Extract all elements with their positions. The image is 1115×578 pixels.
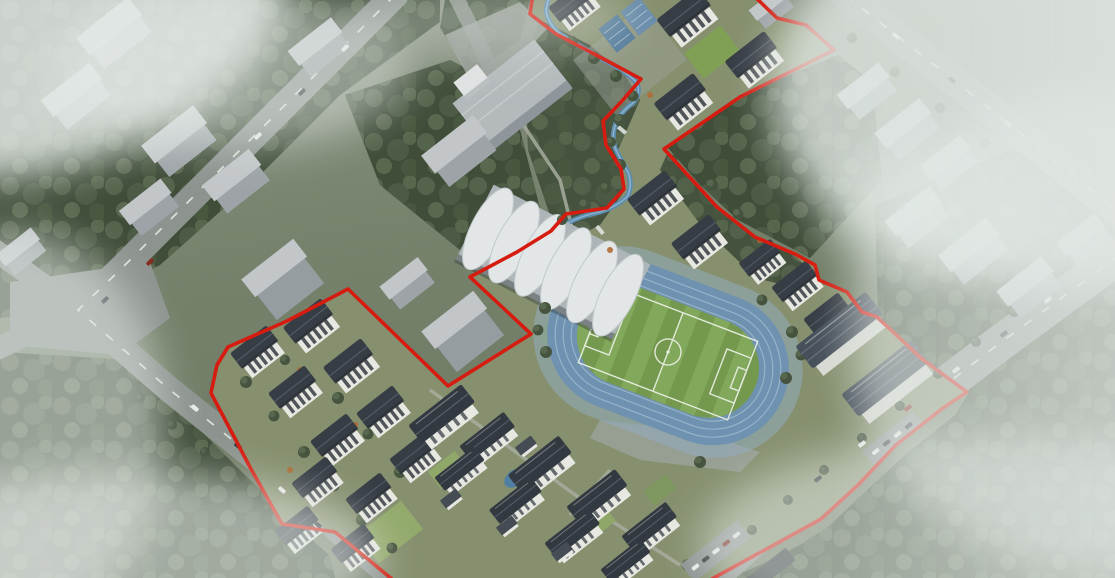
tree xyxy=(614,114,626,126)
tree xyxy=(387,543,398,554)
tree xyxy=(167,420,177,430)
aerial-masterplan-rendering xyxy=(0,0,1115,578)
tree xyxy=(601,183,612,194)
tree xyxy=(733,209,744,220)
tree xyxy=(533,325,544,336)
tree xyxy=(694,456,706,468)
tree xyxy=(363,429,374,440)
tree xyxy=(298,446,310,458)
tree xyxy=(706,179,718,191)
tree xyxy=(786,326,798,338)
tree xyxy=(240,376,252,388)
right-haze xyxy=(820,0,1115,578)
tree xyxy=(280,355,290,365)
tree xyxy=(540,346,552,358)
tree xyxy=(200,447,210,457)
tree xyxy=(757,295,768,306)
tree xyxy=(610,70,622,82)
tree xyxy=(269,411,280,422)
masterplan-scene xyxy=(0,0,1115,578)
tree xyxy=(332,392,344,404)
tree xyxy=(780,372,792,384)
tree xyxy=(539,302,551,314)
